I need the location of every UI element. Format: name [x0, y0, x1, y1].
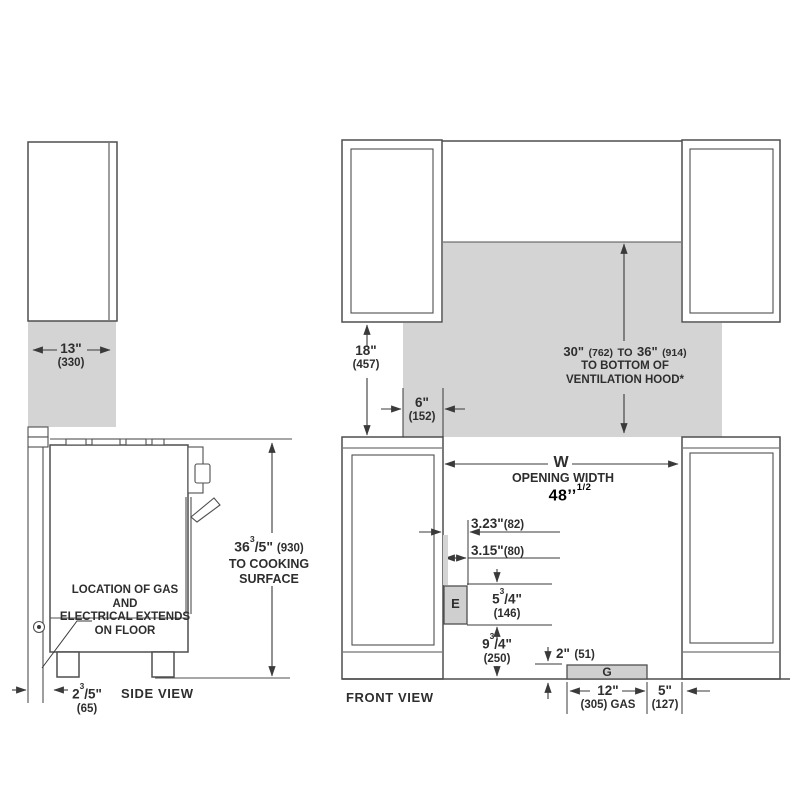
- electrical-box-letter: E: [444, 596, 467, 611]
- gas-note-line-1: LOCATION OF GAS AND: [58, 584, 192, 611]
- range-leg-rear: [57, 652, 79, 677]
- front-view-label: FRONT VIEW: [346, 690, 434, 705]
- clearance-min-mm: (762): [588, 347, 613, 359]
- upper-cab-height-mm: (457): [340, 358, 392, 373]
- height-sup: 3: [250, 534, 255, 544]
- rear-gap-dim: 23/5" (65): [57, 683, 117, 717]
- e-offset-sup: 3: [490, 631, 495, 641]
- cabinet-depth-dim: 13" (330): [37, 341, 105, 371]
- hood-overhang-inches: 6": [399, 395, 445, 410]
- backguard-step-lower: [28, 437, 48, 447]
- base-cabinet-right-door: [690, 453, 773, 643]
- gas-width-mm: (305) GAS: [576, 698, 640, 713]
- gas-height-inches: 2": [556, 646, 570, 661]
- opening-width-number: 48’’: [549, 487, 577, 504]
- e-offset-mm: (250): [466, 652, 528, 667]
- clearance-to: TO: [617, 347, 632, 359]
- gas-height-mm: (51): [574, 649, 594, 661]
- side-view-label: SIDE VIEW: [121, 686, 194, 701]
- clearance-max: 36": [637, 344, 658, 359]
- clearance-max-mm: (914): [662, 347, 687, 359]
- gas-side-dim: 5" (127): [645, 683, 685, 713]
- range-leg-front: [152, 652, 174, 677]
- gas-note-line-3: ON FLOOR: [58, 625, 192, 639]
- gas-height-dim: 2" (51): [556, 646, 595, 663]
- rear-gap-sup: 3: [80, 681, 85, 691]
- grate-1: [66, 439, 86, 445]
- height-to-cooktop-dim: 363/5" (930) TO COOKING SURFACE: [216, 536, 322, 587]
- control-knob: [195, 464, 210, 483]
- side-tall-cabinet: [28, 142, 117, 321]
- e-height-whole: 5: [492, 592, 500, 607]
- dim-3-23-mm: (82): [504, 519, 524, 531]
- dim-3-23: 3.23"(82): [471, 516, 524, 533]
- grate-4: [152, 439, 164, 445]
- hood-overhang-mm: (152): [399, 410, 445, 425]
- electrical-height-dim: 53/4" (146): [476, 588, 538, 622]
- cabinet-depth-mm: (330): [37, 356, 105, 371]
- dim-3-15-inches: 3.15": [471, 543, 504, 558]
- grate-3: [126, 439, 146, 445]
- installation-diagram: 13" (330) 363/5" (930) TO COOKING SURFAC…: [0, 0, 800, 800]
- upper-cab-height-inches: 18": [340, 343, 392, 358]
- gas-note-line-2: ELECTRICAL EXTENDS: [58, 611, 192, 625]
- upper-cabinet-left-door: [351, 149, 433, 313]
- hood-shaded-area-upper: [443, 242, 681, 323]
- cabinet-depth-inches: 13": [37, 341, 105, 356]
- electrical-offset-dim: 93/4" (250): [466, 633, 528, 667]
- side-counter-shaded-area: [28, 321, 116, 427]
- height-frac: /5": [255, 539, 273, 555]
- gas-width-dim: 12" (305) GAS: [576, 683, 640, 713]
- gas-side-inches: 5": [645, 683, 685, 698]
- opening-width-value: 48’’1/2: [540, 484, 600, 503]
- dim-3-15-mm: (80): [504, 546, 524, 558]
- e-height-frac: /4": [504, 592, 522, 607]
- upper-cab-height-dim: 18" (457): [340, 343, 392, 373]
- gas-outlet-center: [37, 625, 41, 629]
- height-mm: (930): [277, 543, 304, 555]
- rear-gap-frac: /5": [84, 687, 102, 702]
- hood-overhang-dim: 6" (152): [399, 395, 445, 425]
- upper-cabinet-right-door: [690, 149, 773, 313]
- opening-width-letter: W: [548, 455, 574, 470]
- opening-width-fraction: 1/2: [577, 482, 592, 493]
- height-whole: 36: [234, 539, 250, 555]
- rear-gap-mm: (65): [57, 702, 117, 717]
- height-caption-1: TO COOKING: [216, 557, 322, 572]
- rear-gap-whole: 2: [72, 687, 80, 702]
- height-caption-2: SURFACE: [216, 572, 322, 587]
- e-height-mm: (146): [476, 607, 538, 622]
- hood-clearance-note: 30" (762) TO 36" (914) TO BOTTOM OF VENT…: [538, 345, 712, 387]
- e-height-sup: 3: [500, 586, 505, 596]
- gas-box-letter: G: [567, 665, 647, 679]
- base-cabinet-left-door: [352, 455, 434, 645]
- backguard-step-upper: [28, 427, 48, 437]
- e-offset-whole: 9: [482, 637, 490, 652]
- dim-3-23-inches: 3.23": [471, 516, 504, 531]
- gas-side-mm: (127): [645, 698, 685, 713]
- electrical-zone-strip: [443, 535, 448, 585]
- e-offset-frac: /4": [494, 637, 512, 652]
- gas-width-inches: 12": [576, 683, 640, 698]
- gas-location-note: LOCATION OF GAS AND ELECTRICAL EXTENDS O…: [58, 584, 192, 638]
- grate-2: [92, 439, 120, 445]
- clearance-caption-1: TO BOTTOM OF: [538, 360, 712, 374]
- door-handle: [191, 498, 220, 522]
- clearance-min: 30": [563, 344, 584, 359]
- dim-3-15: 3.15"(80): [471, 543, 524, 560]
- clearance-caption-2: VENTILATION HOOD*: [538, 374, 712, 388]
